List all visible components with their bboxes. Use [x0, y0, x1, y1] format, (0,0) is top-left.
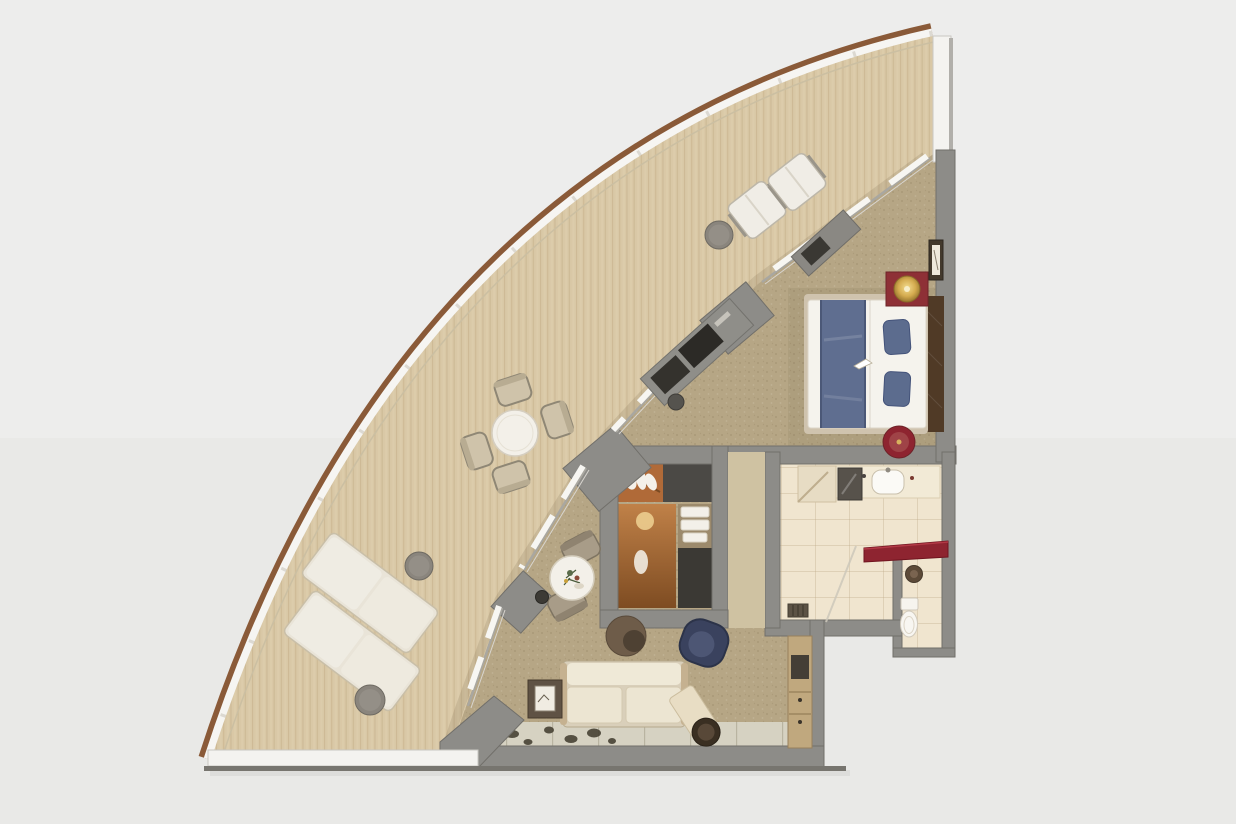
drawer-handle	[798, 698, 802, 702]
back-cushion	[567, 663, 681, 685]
wall-basin: Wall basin	[906, 566, 923, 583]
wall-art: Wall art	[929, 240, 943, 280]
toiletry-item	[910, 476, 914, 480]
lower-cabinet: Lower cabinet	[678, 548, 712, 608]
nightstand: Nightstand with lamp	[886, 272, 928, 306]
sink: Sink	[872, 468, 904, 495]
wall-balcony-south-edge	[204, 766, 846, 771]
double-bed: Double bed with blue runner	[804, 294, 928, 434]
balcony-dining-table: Round dining table	[492, 410, 538, 456]
wall-shower-south	[765, 620, 902, 636]
bedside-stool: Bedside stool	[883, 426, 915, 458]
wall-living-south	[446, 746, 824, 768]
wall-bathroom-west	[765, 452, 780, 628]
faucet	[886, 468, 891, 473]
appliance-front	[791, 655, 809, 679]
side-table: Side table	[528, 680, 562, 718]
sofa: Sofa	[560, 661, 688, 727]
floor-plan-render: Curved suite floor plan — top-down 3D re…	[0, 0, 1236, 824]
closet-lamp-glow	[636, 512, 654, 530]
ice-bucket: Ice bucket	[536, 591, 549, 604]
balcony-drinks-table: Drinks table	[705, 221, 733, 249]
garment-white	[634, 550, 648, 574]
pillow	[883, 319, 911, 355]
vanity: Vanity counter	[798, 466, 940, 502]
closet-dark-panel	[663, 462, 712, 502]
console-desk: Console desk	[788, 636, 812, 748]
pillow	[883, 371, 911, 406]
wall-closet-east	[712, 446, 728, 628]
toilet-tank	[901, 598, 918, 610]
wall-east-white-edge	[949, 38, 953, 162]
wall-east-white	[933, 36, 951, 162]
seat-cushion	[567, 687, 622, 723]
vanity-stool: Vanity stool	[668, 394, 684, 410]
toilet: Toilet	[901, 598, 919, 637]
drawer-handle	[798, 720, 802, 724]
toiletry-item	[862, 474, 866, 478]
wall-toilet-south	[893, 648, 955, 657]
lounger-side-table: Lounger side table	[355, 685, 385, 715]
wall-balcony-south-white	[208, 750, 478, 766]
bistro-table: Bistro table	[550, 556, 594, 600]
floor-plan-stage: Curved suite floor plan — top-down 3D re…	[0, 0, 1236, 824]
ottoman: Ottoman	[606, 616, 646, 656]
framed-object	[535, 686, 555, 711]
wall-top-lit-strip	[728, 452, 765, 628]
lounger-side-table: Lounger side table	[405, 552, 433, 580]
towel-stacks: Shelves with towels	[681, 507, 709, 542]
